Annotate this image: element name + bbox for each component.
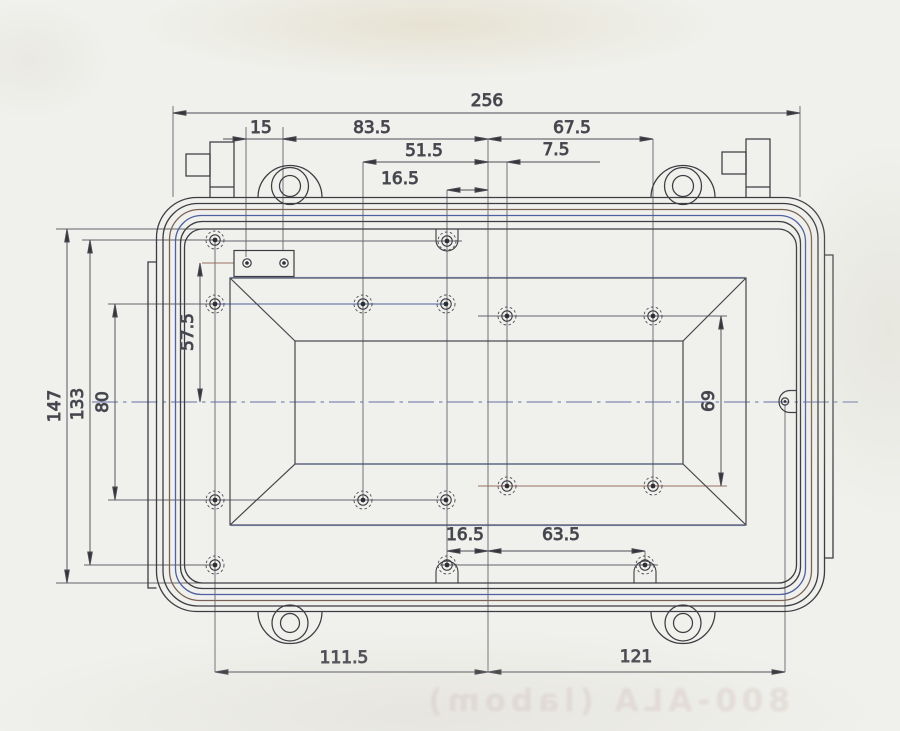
dimension-arrow: [475, 188, 488, 193]
dimension-arrow: [283, 137, 296, 142]
dimension-arrow: [632, 549, 645, 554]
scanned-drawing-page: 800-ALA (labom): [0, 0, 900, 731]
dim-offset-16-5-top: 16.5: [381, 169, 488, 192]
mounting-ear-top-left: [258, 166, 322, 205]
left-side-step: [148, 262, 157, 588]
dimension-arrow: [719, 316, 724, 329]
dimension-arrow: [507, 160, 520, 165]
dimension-annotations: 2561583.567.551.57.516.516.563.5111.5121…: [45, 91, 800, 674]
right-side-step: [825, 255, 834, 558]
dim-span-67-5: 67.5: [488, 118, 653, 141]
dimension-arrow: [88, 552, 93, 565]
dimension-label: 121: [620, 647, 652, 667]
dimension-arrow: [233, 137, 246, 142]
hole-center: [361, 302, 366, 307]
dim-offset-16-5-bottom: 16.5: [446, 525, 488, 553]
dimension-arrow: [488, 670, 501, 675]
dimension-arrow: [65, 570, 70, 583]
hole-center: [643, 563, 648, 568]
dimension-label: 111.5: [320, 648, 369, 668]
mounting-ears: [258, 166, 715, 644]
pocket-corner-line: [230, 464, 295, 525]
hole-center: [213, 302, 218, 307]
hole-center: [213, 498, 218, 503]
dimension-arrow: [88, 240, 93, 253]
dim-height-147: 147: [45, 229, 69, 583]
dimension-arrow: [475, 549, 488, 554]
pocket-corner-line: [683, 464, 746, 525]
hole-center: [651, 484, 656, 489]
dimension-label: 256: [471, 91, 503, 111]
dimension-arrow: [113, 487, 118, 500]
mounting-ear-top-right: [651, 166, 715, 205]
dim-span-121: 121: [488, 647, 785, 674]
dim-span-63-5: 63.5: [488, 525, 645, 553]
enclosure-outline: [148, 198, 833, 612]
hole-center: [444, 302, 449, 307]
dimension-label: 7.5: [542, 140, 569, 160]
dimension-label: 80: [93, 391, 113, 413]
body-outer-edge: [157, 198, 825, 612]
hole-center: [444, 498, 449, 503]
dim-height-133: 133: [68, 240, 92, 565]
dimension-label: 63.5: [542, 525, 580, 545]
hole-center: [651, 314, 656, 319]
dimension-arrow: [475, 137, 488, 142]
dimension-arrow: [787, 111, 800, 116]
hole-center: [213, 238, 218, 243]
dimension-arrow: [719, 473, 724, 486]
pocket-corner-line: [683, 278, 746, 341]
dimension-label: 69: [699, 390, 719, 412]
dimension-arrow: [640, 137, 653, 142]
pocket-corner-line: [230, 278, 295, 341]
dimension-arrow: [447, 188, 460, 193]
dimension-label: 67.5: [553, 118, 591, 138]
hole-center: [505, 484, 510, 489]
dimension-arrow: [198, 263, 203, 276]
dimension-label: 133: [68, 388, 88, 420]
dim-span-111-5: 111.5: [215, 648, 488, 674]
hole-center: [445, 563, 450, 568]
dimension-label: 51.5: [405, 141, 443, 161]
connector-stub-right: [722, 139, 770, 198]
dimension-arrow: [113, 304, 118, 317]
dimension-arrow: [198, 389, 203, 402]
mounting-ear-bottom-right: [651, 605, 715, 644]
dim-offset-7-5: 7.5: [473, 140, 600, 164]
fixing-plate: [234, 251, 294, 277]
dimension-arrow: [488, 137, 501, 142]
hole-center: [361, 498, 366, 503]
dim-overall-width: 256: [173, 91, 800, 115]
dimension-label: 57.5: [178, 313, 198, 351]
dimension-label: 147: [45, 390, 65, 422]
connector-stub-left: [186, 142, 234, 198]
dimension-arrow: [173, 111, 186, 116]
hole-center: [505, 314, 510, 319]
dimension-arrow: [488, 549, 501, 554]
dimension-label: 83.5: [353, 118, 391, 138]
hole-center: [445, 239, 450, 244]
dimension-arrow: [65, 229, 70, 242]
dimension-arrow: [363, 160, 376, 165]
technical-drawing: 2561583.567.551.57.516.516.563.5111.5121…: [0, 0, 900, 731]
dimension-label: 16.5: [381, 169, 419, 189]
dimension-arrow: [475, 670, 488, 675]
dim-height-69: 69: [699, 316, 723, 486]
dimension-arrow: [772, 670, 785, 675]
mounting-ear-bottom-left: [258, 605, 322, 644]
hole-center: [213, 563, 218, 568]
dimension-arrow: [475, 160, 488, 165]
dimension-label: 15: [250, 118, 272, 138]
dim-height-57-5: 57.5: [178, 263, 202, 402]
dim-span-83-5: 83.5: [283, 118, 488, 141]
dimension-label: 16.5: [446, 525, 484, 545]
dimension-arrow: [215, 670, 228, 675]
dim-span-51-5: 51.5: [363, 141, 488, 164]
gasket-line-1: [163, 204, 818, 607]
construction-lines: [56, 106, 800, 672]
dimension-arrow: [447, 549, 460, 554]
